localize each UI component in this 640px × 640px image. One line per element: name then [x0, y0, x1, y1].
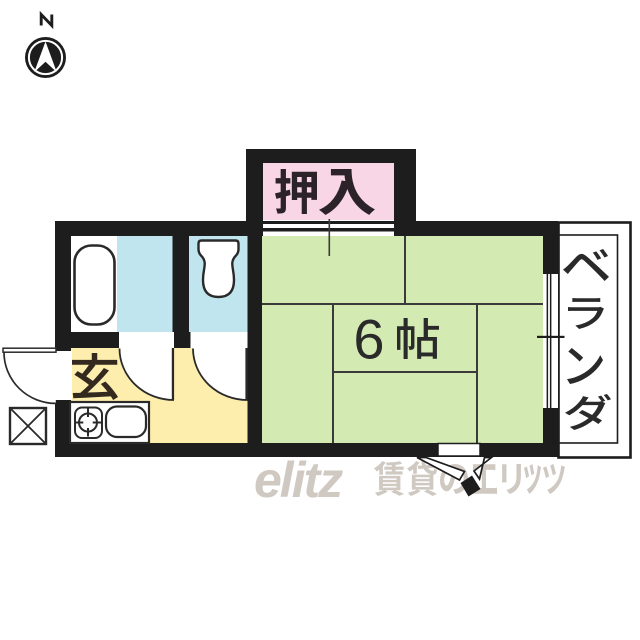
svg-text:6: 6: [353, 308, 384, 371]
svg-text:elitz: elitz: [254, 452, 343, 508]
